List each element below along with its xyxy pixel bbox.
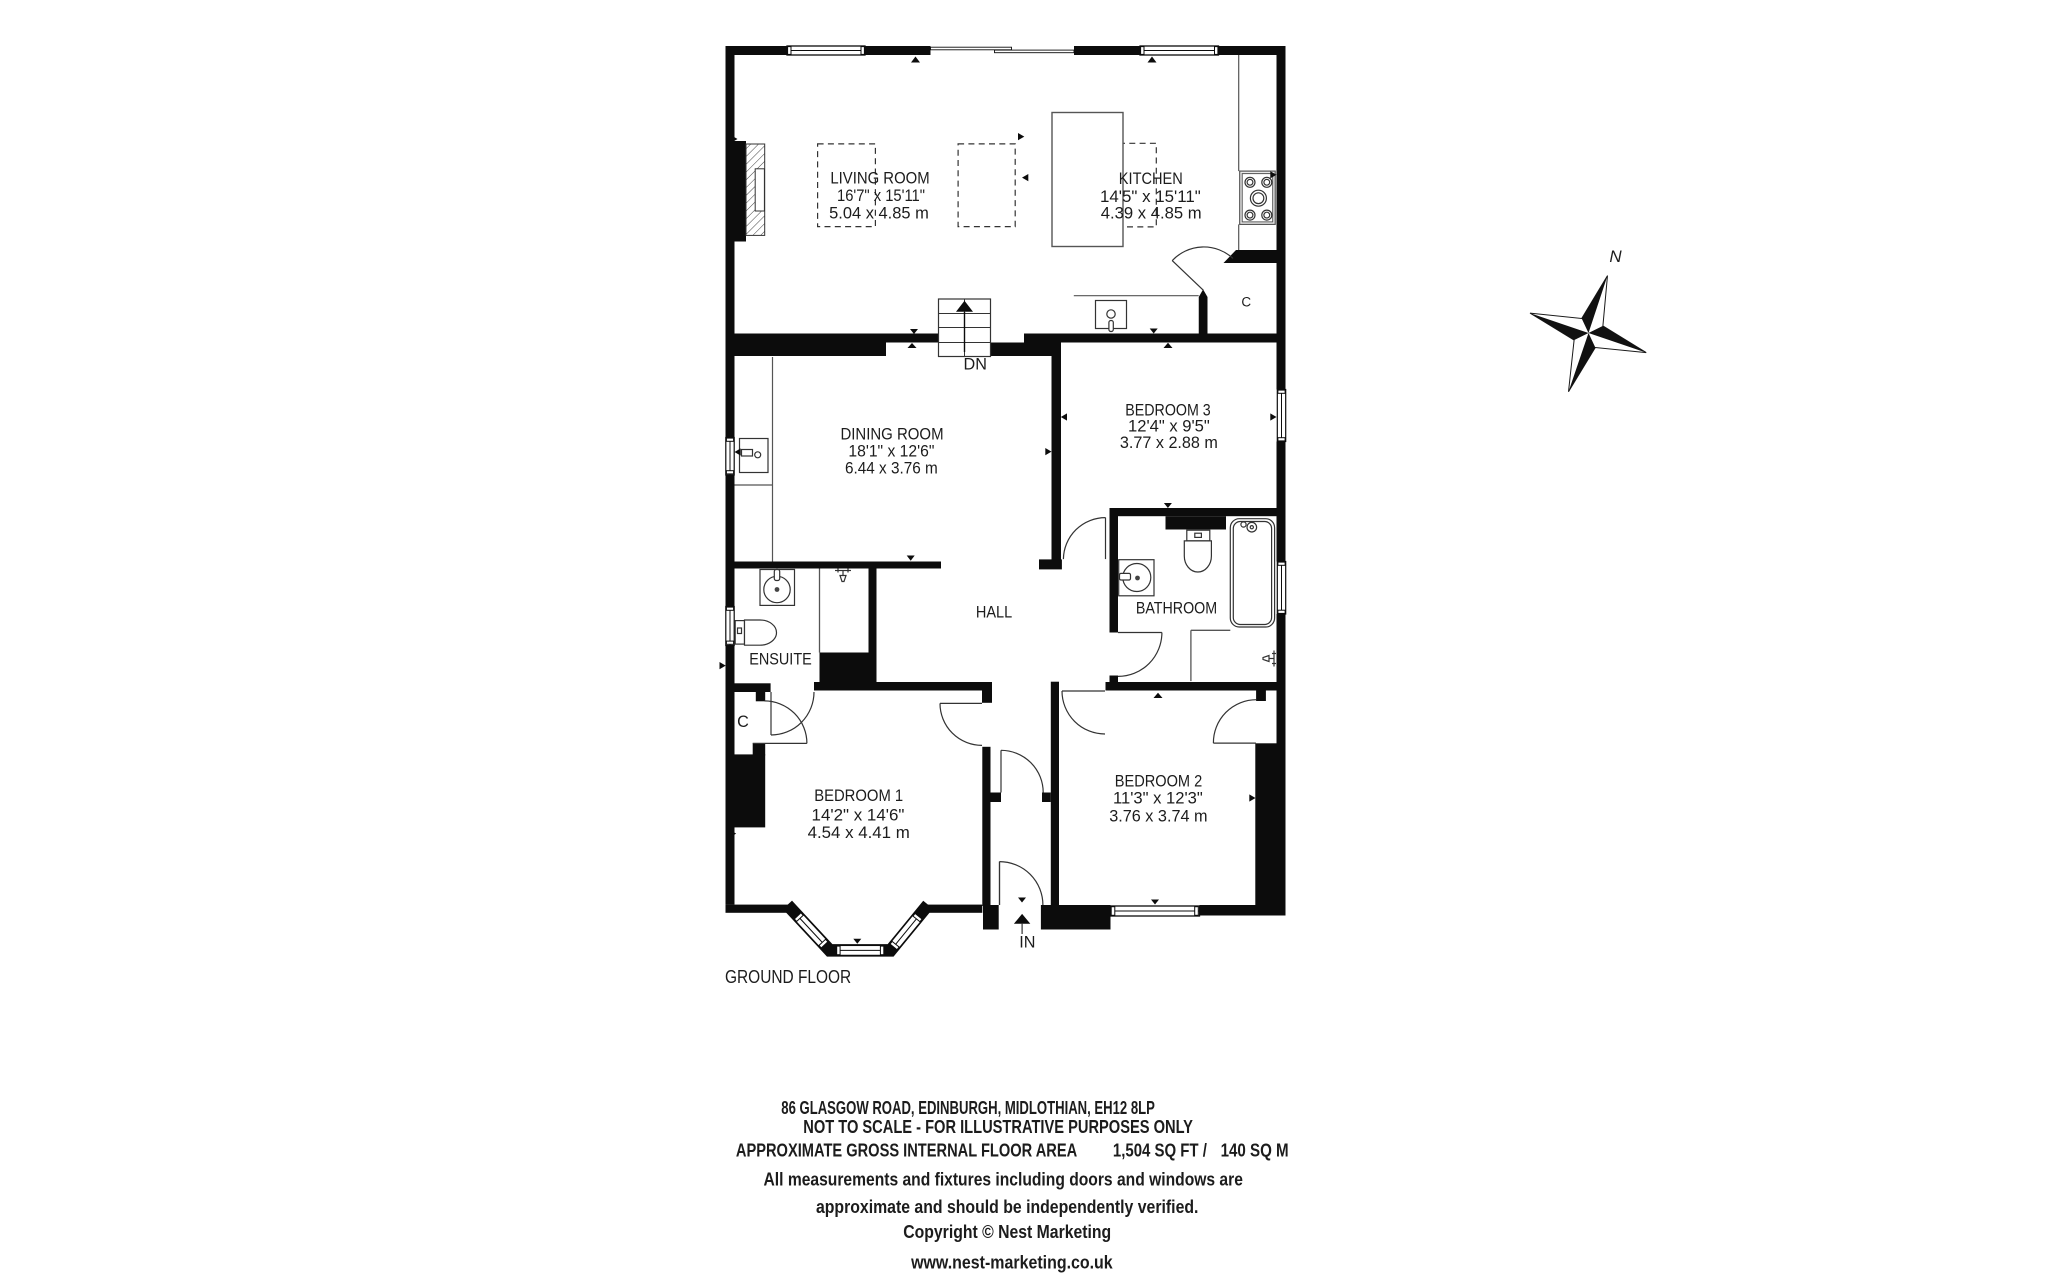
svg-text:11'3" x 12'3": 11'3" x 12'3" xyxy=(1113,790,1203,808)
svg-text:BEDROOM 1: BEDROOM 1 xyxy=(814,787,903,805)
svg-text:86 GLASGOW ROAD, EDINBURGH, MI: 86 GLASGOW ROAD, EDINBURGH, MIDLOTHIAN, … xyxy=(781,1097,1155,1118)
svg-text:NOT TO SCALE - FOR ILLUSTRATIV: NOT TO SCALE - FOR ILLUSTRATIVE PURPOSES… xyxy=(803,1116,1193,1137)
svg-text:140 SQ M: 140 SQ M xyxy=(1221,1140,1289,1161)
svg-text:14'5" x 15'11": 14'5" x 15'11" xyxy=(1100,188,1201,206)
svg-text:1,504 SQ FT /: 1,504 SQ FT / xyxy=(1113,1140,1207,1161)
svg-text:HALL: HALL xyxy=(976,604,1012,622)
svg-text:APPROXIMATE GROSS INTERNAL FLO: APPROXIMATE GROSS INTERNAL FLOOR AREA xyxy=(736,1140,1077,1161)
svg-text:BEDROOM 2: BEDROOM 2 xyxy=(1115,772,1203,790)
svg-text:approximate and should be inde: approximate and should be independently … xyxy=(816,1196,1199,1217)
svg-text:C: C xyxy=(1241,294,1251,309)
svg-text:DINING ROOM: DINING ROOM xyxy=(840,425,943,443)
svg-text:3.76 x 3.74 m: 3.76 x 3.74 m xyxy=(1109,807,1207,825)
svg-text:6.44 x 3.76 m: 6.44 x 3.76 m xyxy=(845,459,938,477)
svg-text:18'1" x 12'6": 18'1" x 12'6" xyxy=(848,442,934,460)
svg-text:N: N xyxy=(1609,247,1622,266)
svg-text:Copyright © Nest Marketing: Copyright © Nest Marketing xyxy=(903,1221,1111,1242)
svg-text:4.54 x 4.41 m: 4.54 x 4.41 m xyxy=(808,824,910,842)
svg-text:3.77 x 2.88 m: 3.77 x 2.88 m xyxy=(1120,434,1218,452)
svg-text:5.04 x 4.85 m: 5.04 x 4.85 m xyxy=(829,205,929,223)
svg-text:14'2" x 14'6": 14'2" x 14'6" xyxy=(812,807,905,825)
svg-text:C: C xyxy=(737,713,749,731)
svg-text:All measurements and fixtures: All measurements and fixtures including … xyxy=(764,1169,1243,1190)
svg-text:www.nest-marketing.co.uk: www.nest-marketing.co.uk xyxy=(910,1252,1113,1273)
svg-text:LIVING ROOM: LIVING ROOM xyxy=(830,169,929,187)
svg-text:16'7" x 15'11": 16'7" x 15'11" xyxy=(837,187,925,205)
svg-text:GROUND FLOOR: GROUND FLOOR xyxy=(725,966,851,987)
svg-text:DN: DN xyxy=(964,356,987,374)
svg-text:KITCHEN: KITCHEN xyxy=(1119,170,1183,188)
svg-text:IN: IN xyxy=(1019,933,1035,951)
svg-text:4.39 x 4.85 m: 4.39 x 4.85 m xyxy=(1101,205,1202,223)
svg-text:BATHROOM: BATHROOM xyxy=(1136,600,1217,618)
svg-text:ENSUITE: ENSUITE xyxy=(749,651,812,669)
